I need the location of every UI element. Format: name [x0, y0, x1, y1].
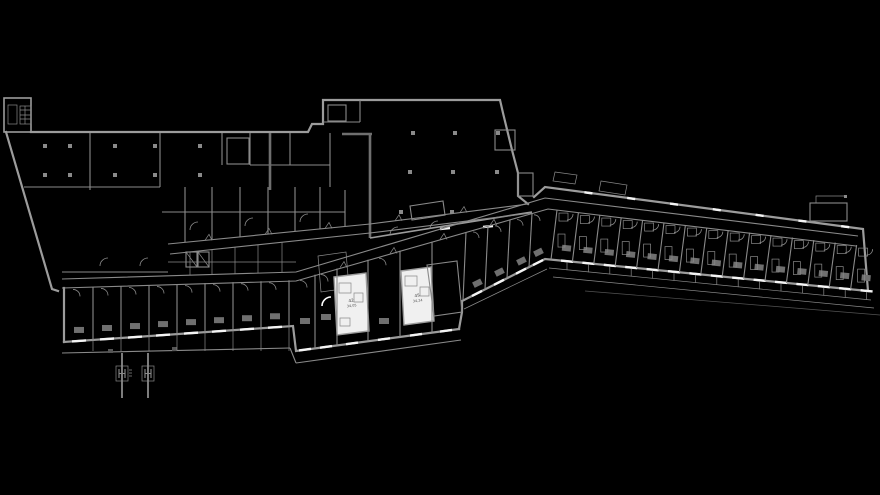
window-segment: [320, 346, 332, 348]
column-dot: [844, 195, 847, 198]
room-label-smudge: [158, 321, 168, 327]
window-segment: [156, 335, 170, 336]
window-segment: [818, 286, 830, 287]
column-dot: [450, 210, 454, 214]
wall-stub: [108, 349, 113, 353]
room-label-smudge: [690, 257, 700, 264]
window-segment: [732, 278, 744, 279]
window-segment: [711, 275, 723, 276]
window-segment: [754, 280, 766, 281]
column-dot: [198, 173, 202, 177]
window-segment: [604, 265, 616, 266]
room-label-smudge: [840, 272, 850, 279]
corridor-window: [841, 226, 849, 227]
corridor-window: [798, 221, 806, 222]
window-segment: [268, 327, 282, 328]
wall-stub: [172, 347, 177, 351]
window-segment: [72, 340, 86, 341]
floor-plan-canvas: 42 34,05 45 34,24: [0, 0, 880, 495]
room-label-smudge: [321, 314, 331, 320]
window-segment: [647, 269, 659, 270]
room-label-smudge: [379, 318, 389, 324]
column-dot: [198, 144, 202, 148]
room-label-smudge: [242, 315, 252, 321]
column-dot: [495, 170, 499, 174]
window-segment: [378, 338, 390, 340]
room-label-smudge: [562, 245, 572, 252]
window-segment: [299, 349, 311, 351]
column-dot: [399, 210, 403, 214]
window-segment: [128, 337, 142, 338]
room-label-smudge: [130, 323, 140, 329]
room-label-smudge: [583, 247, 593, 254]
room-label-smudge: [270, 313, 280, 319]
column-dot: [453, 131, 457, 135]
room-label-smudge: [300, 318, 310, 324]
apartment-42-number: 42: [348, 298, 354, 304]
room-label-smudge: [647, 253, 657, 260]
column-dot: [68, 173, 72, 177]
window-segment: [796, 284, 808, 285]
column-dot: [408, 170, 412, 174]
corridor-window: [670, 204, 678, 205]
room-label-smudge: [819, 270, 829, 277]
column-dot: [43, 173, 47, 177]
corridor-window: [713, 209, 721, 210]
column-dot: [153, 173, 157, 177]
window-segment: [668, 271, 680, 272]
room-label-smudge: [669, 255, 679, 262]
window-segment: [184, 333, 198, 334]
window-segment: [561, 261, 573, 262]
column-dot: [451, 170, 455, 174]
room-label-smudge: [74, 327, 84, 333]
room-label-smudge: [797, 268, 807, 275]
window-segment: [839, 288, 851, 289]
corridor-window: [584, 192, 592, 193]
window-segment: [212, 331, 226, 332]
window-segment: [440, 330, 452, 332]
window-segment: [625, 267, 637, 268]
room-label-smudge: [861, 274, 871, 281]
window-segment: [689, 273, 701, 274]
column-dot: [153, 144, 157, 148]
room-label-smudge: [186, 319, 196, 325]
window-segment: [582, 263, 594, 264]
column-dot: [68, 144, 72, 148]
window-segment: [100, 339, 114, 340]
room-label-smudge: [214, 317, 224, 323]
window-segment: [410, 334, 422, 336]
room-label-smudge: [712, 260, 722, 267]
column-dot: [113, 144, 117, 148]
room-label-smudge: [776, 266, 786, 273]
window-segment: [861, 290, 873, 291]
column-dot: [113, 173, 117, 177]
column-dot: [496, 131, 500, 135]
corridor-window: [627, 198, 635, 199]
window-segment: [346, 343, 358, 345]
window-segment: [775, 282, 787, 283]
window-segment: [240, 329, 254, 330]
apartment-45-number: 45: [414, 293, 420, 299]
room-label-smudge: [733, 262, 743, 269]
column-dot: [411, 131, 415, 135]
room-label-smudge: [102, 325, 112, 331]
corridor-window: [756, 215, 764, 216]
column-dot: [43, 144, 47, 148]
